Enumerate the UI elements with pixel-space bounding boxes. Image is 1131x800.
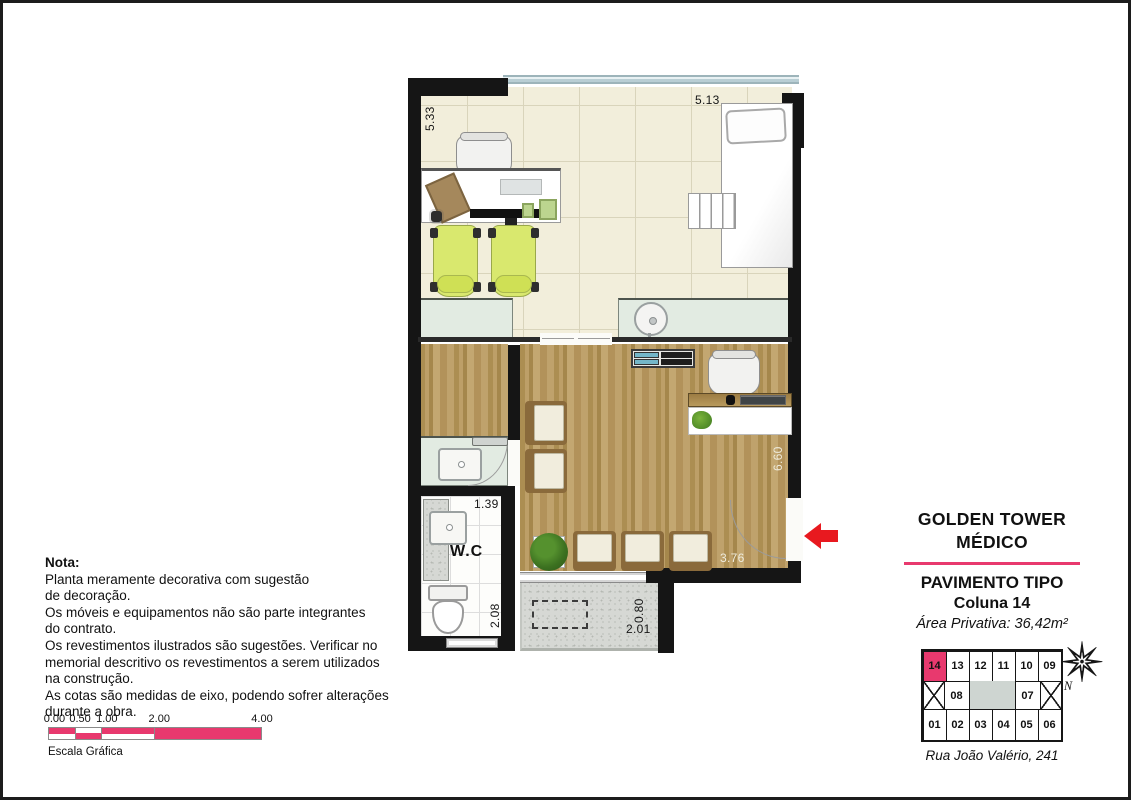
exam-bed <box>721 103 793 268</box>
dim-terrace-depth: 0.80 <box>632 598 646 623</box>
desk-phone-icon <box>431 211 442 222</box>
desk-plant-icon <box>692 411 712 429</box>
key-plan: 14 13 12 11 10 09 08 07 01 02 03 04 05 0… <box>921 649 1063 742</box>
magazine-rack <box>631 349 695 368</box>
desk-tray-small <box>522 203 534 218</box>
floor-plan: 5.33 5.13 6.60 3.76 1.39 2.08 0.80 2.01 … <box>408 73 848 673</box>
corridor <box>969 681 1015 709</box>
dim-wc-depth: 2.08 <box>488 603 502 628</box>
waiting-armchair-1 <box>525 401 567 445</box>
scale-tick-label: 1.00 <box>96 713 117 725</box>
note-line: Os móveis e equipamentos não são parte i… <box>45 605 417 622</box>
wall-bottom-right <box>646 568 801 583</box>
wall-top-left <box>408 78 508 96</box>
unit-03: 03 <box>969 709 993 740</box>
scale-tick-label: 0.00 <box>44 713 65 725</box>
wall-wc-right <box>501 496 515 651</box>
wc-room-label: W.C <box>450 543 483 561</box>
scale-tick-label: 4.00 <box>251 713 272 725</box>
double-door-opening <box>540 333 612 345</box>
unit-08: 08 <box>944 681 970 710</box>
scale-tick-label: 2.00 <box>149 713 170 725</box>
unit-07: 07 <box>1015 681 1041 710</box>
column-label: Coluna 14 <box>896 593 1088 614</box>
waiting-armchair-5 <box>669 531 712 571</box>
compass-rose-icon: N <box>1059 639 1105 696</box>
wc-sink <box>429 511 467 545</box>
dim-terrace-width: 2.01 <box>626 622 651 636</box>
floor-plan-sheet: 5.33 5.13 6.60 3.76 1.39 2.08 0.80 2.01 … <box>0 0 1131 800</box>
waiting-armchair-2 <box>525 449 567 493</box>
entrance-opening <box>786 498 803 561</box>
scale-labels: 0.00 0.50 1.00 2.00 4.00 <box>48 713 262 726</box>
note-title: Nota: <box>45 555 417 572</box>
pantry-tray <box>472 437 508 446</box>
entrance-arrow-icon <box>804 523 838 549</box>
floor-type-label: PAVIMENTO TIPO <box>896 572 1088 593</box>
note-line: de decoração. <box>45 588 417 605</box>
round-sink <box>634 302 668 336</box>
building-name-line1: GOLDEN TOWER <box>896 508 1088 531</box>
patient-chair-1 <box>433 225 478 297</box>
desk-tray-large <box>539 199 557 220</box>
patient-chair-2 <box>491 225 536 297</box>
unit-11: 11 <box>992 651 1016 682</box>
pillow <box>725 107 787 144</box>
pantry-door-opening <box>508 440 520 486</box>
reception-chair <box>708 353 760 395</box>
dim-waiting: 3.76 <box>720 551 745 565</box>
wc-window <box>446 638 498 648</box>
doctor-desk <box>421 168 561 223</box>
unit-06: 06 <box>1038 709 1062 740</box>
waiting-armchair-4 <box>621 531 664 571</box>
floor-plant <box>530 533 568 571</box>
note-line: do contrato. <box>45 621 417 638</box>
building-name-line2: MÉDICO <box>896 531 1088 554</box>
note-line: As cotas são medidas de eixo, podendo so… <box>45 688 417 705</box>
note-line: Planta meramente decorativa com sugestão <box>45 572 417 589</box>
note-block: Nota: Planta meramente decorativa com su… <box>45 555 417 721</box>
note-line: memorial descritivo os revestimentos a s… <box>45 655 417 672</box>
keyplan-top-row: 14 13 12 11 10 09 <box>923 651 1061 681</box>
accent-divider <box>904 562 1080 565</box>
stair-core-left <box>923 681 945 710</box>
mouse-icon <box>726 395 735 405</box>
terrace-sliding-door <box>520 572 646 583</box>
desk-pad <box>500 179 542 195</box>
scale-caption: Escala Gráfica <box>48 746 262 758</box>
title-block: GOLDEN TOWER MÉDICO PAVIMENTO TIPO Colun… <box>896 508 1088 632</box>
waiting-armchair-3 <box>573 531 616 571</box>
note-line: na construção. <box>45 671 417 688</box>
unit-01: 01 <box>923 709 947 740</box>
condenser-dashed-outline <box>532 600 588 629</box>
unit-12: 12 <box>969 651 993 682</box>
dim-wc-width: 1.39 <box>474 497 499 511</box>
dim-top: 5.13 <box>695 93 720 107</box>
street-address: Rua João Valério, 241 <box>883 748 1101 763</box>
facade-window <box>503 75 799 84</box>
dim-right: 6.60 <box>771 446 785 471</box>
wall-wc-top <box>408 486 515 496</box>
scale-tick-label: 0.50 <box>69 713 90 725</box>
compass-north-label: N <box>1063 679 1073 691</box>
pantry-floor <box>420 344 508 436</box>
unit-05: 05 <box>1015 709 1039 740</box>
note-line: Os revestimentos ilustrados são sugestõe… <box>45 638 417 655</box>
unit-02: 02 <box>946 709 970 740</box>
step-stool <box>688 193 736 229</box>
exam-counter-left <box>420 298 513 340</box>
toilet-tank <box>428 585 468 601</box>
wall-terrace-right <box>658 583 674 653</box>
unit-14: 14 <box>923 651 947 682</box>
private-area-label: Área Privativa: 36,42m² <box>896 616 1088 632</box>
wall-pantry <box>508 345 520 440</box>
unit-04: 04 <box>992 709 1016 740</box>
scale-bar <box>48 727 262 740</box>
keyboard-icon <box>740 395 786 405</box>
graphic-scale: 0.00 0.50 1.00 2.00 4.00 Escala Gráfica <box>48 713 262 758</box>
dim-left: 5.33 <box>423 106 437 131</box>
unit-13: 13 <box>946 651 970 682</box>
unit-10: 10 <box>1015 651 1039 682</box>
keyplan-bottom-row: 01 02 03 04 05 06 <box>923 710 1061 740</box>
keyplan-middle-row: 08 07 <box>923 681 1061 709</box>
pantry-sink <box>438 448 482 481</box>
unit-09: 09 <box>1038 651 1062 682</box>
